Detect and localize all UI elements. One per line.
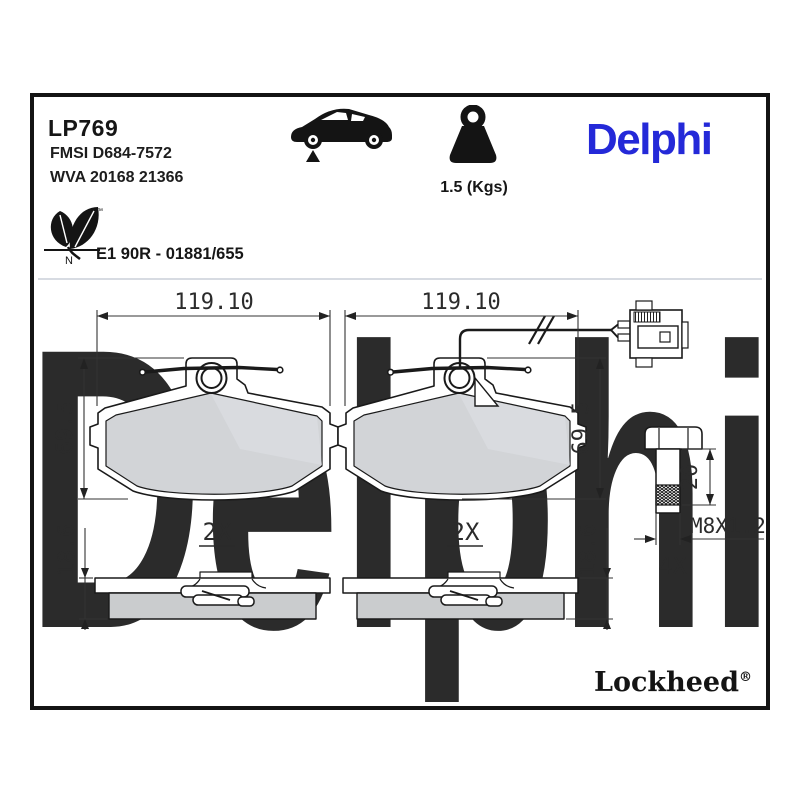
dim-bolt-length-value: 20 [678,464,703,491]
front-axle-marker-icon [306,150,320,162]
dim-thickness-left-value: 18.6 [55,524,80,577]
weight-value: 1.5 (Kgs) [432,179,516,197]
lockheed-logo: Lockheed® [594,667,752,698]
bolt-thread-label: M8X1.25 [690,514,766,538]
qty-label-right: 2X [451,518,480,546]
delphi-logo: Delphi [586,115,711,165]
header-separator [38,278,762,280]
eco-leaf-icon: N ™ [42,205,104,269]
wva-reference: WVA 20168 21366 [50,169,183,187]
approval-text: E1 90R - 01881/655 [96,245,244,264]
eco-tm-mark: ™ [96,208,103,215]
car-side-silhouette-icon [286,102,396,164]
drawing-frame: LP769 FMSI D684-7572 WVA 20168 21366 1.5… [30,93,770,710]
technical-drawing: Delphi 119.10 [34,282,766,702]
datasheet-page: LP769 FMSI D684-7572 WVA 20168 21366 1.5… [0,0,800,800]
dim-thickness-right-value: 18.6 [576,524,601,577]
eco-n-letter: N [65,255,73,267]
qty-label-left: 2X [203,518,232,546]
pad-side-view-left [95,572,330,619]
weight-kettlebell-icon [442,105,504,173]
dim-width-right-value: 119.10 [421,290,500,315]
bolt-qty-label: 4X [658,552,687,580]
dim-width-left-value: 119.10 [174,290,253,315]
dim-height-left-value: 69.5 [53,402,78,455]
fmsi-reference: FMSI D684-7572 [50,145,172,163]
dim-height-right-value: 69.5 [569,402,594,455]
lockheed-wordmark: Lockheed [594,667,739,698]
pad-side-view-right [343,572,578,619]
part-number: LP769 [48,115,118,142]
registered-mark: ® [739,670,752,685]
